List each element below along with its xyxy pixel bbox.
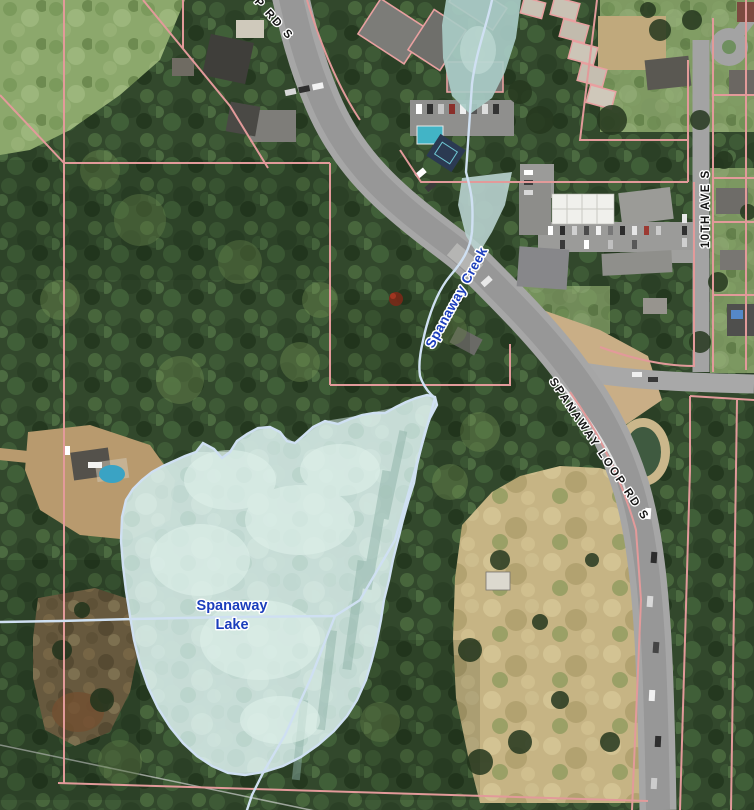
shed (172, 58, 194, 76)
red-tree-core (390, 293, 396, 299)
lakeside-pool (99, 465, 125, 483)
commercial-building (519, 183, 551, 235)
map-viewport[interactable]: P RD S Spanaway Creek SPANAWAY LOOP RD S… (0, 0, 754, 810)
lake-label-line-2: Lake (215, 617, 248, 633)
cul-de-sac-island (722, 40, 736, 54)
aerial-imagery (0, 0, 754, 810)
house (202, 34, 254, 84)
commercial-building (601, 250, 672, 276)
house (727, 304, 754, 336)
commercial-building (517, 246, 570, 289)
blue-tarp (731, 310, 743, 319)
lake-label-line-1: Spanaway (197, 598, 268, 614)
commercial-building (618, 187, 674, 225)
house-driveway-nw (236, 20, 264, 38)
house (720, 250, 746, 270)
field-shed (486, 572, 510, 590)
map-canvas[interactable]: P RD S Spanaway Creek SPANAWAY LOOP RD S… (0, 0, 754, 810)
avenue-label: 10TH AVE S (700, 169, 712, 248)
house (729, 70, 754, 96)
house (645, 56, 692, 90)
commercial-building (643, 298, 667, 314)
